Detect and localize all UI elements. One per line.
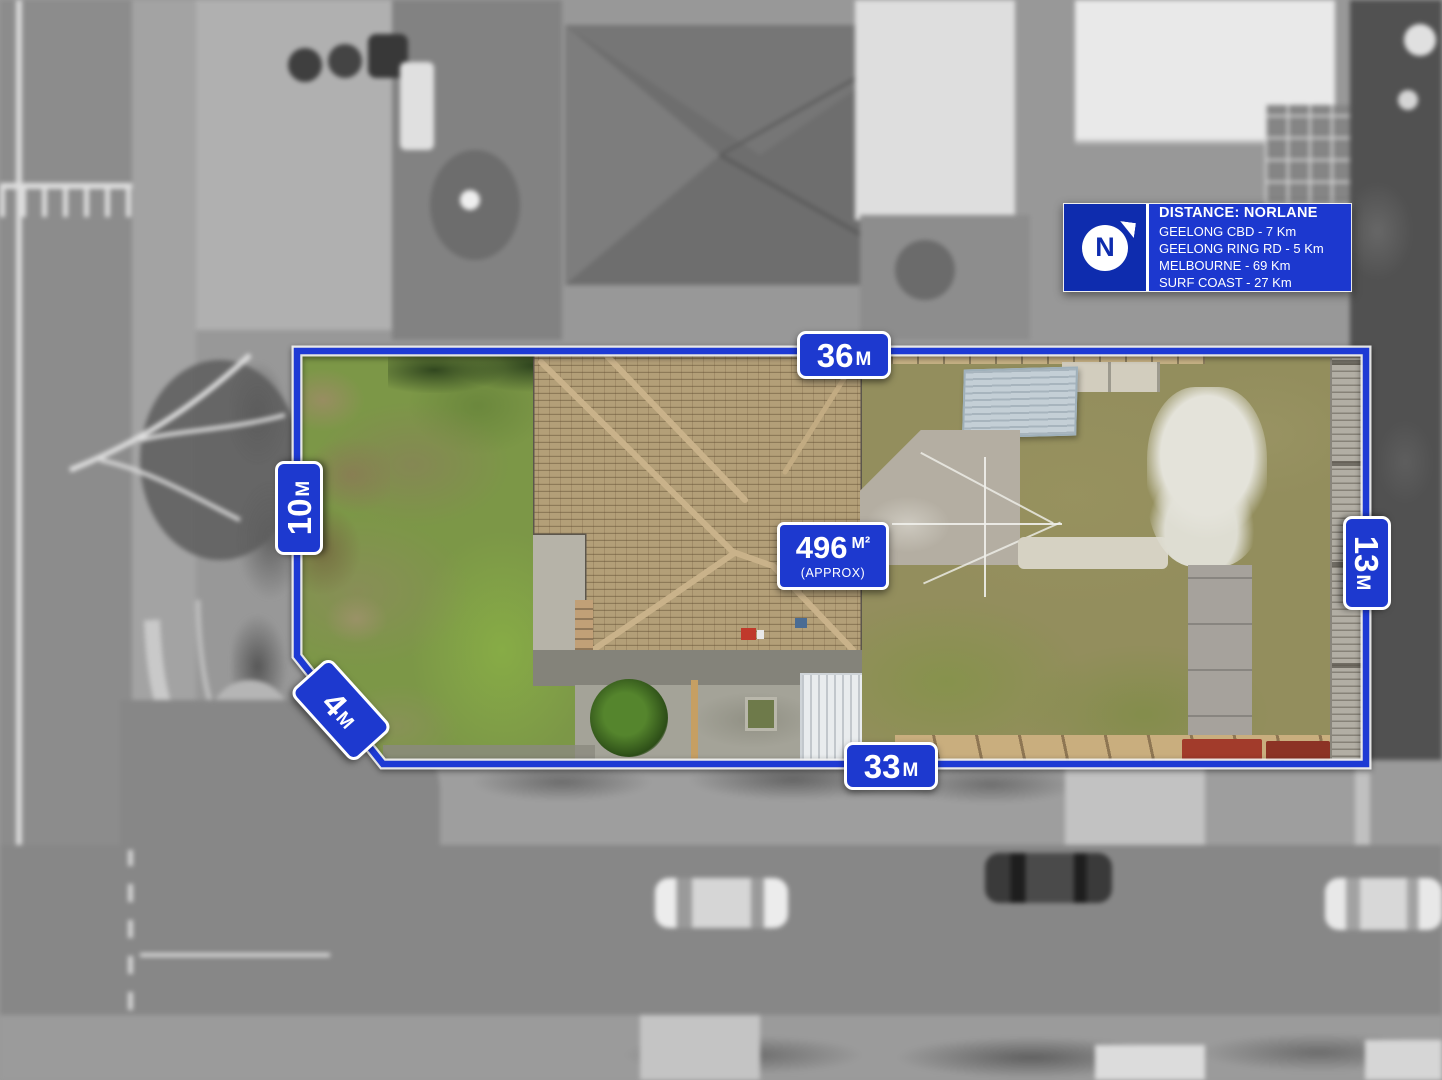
distance-title: DISTANCE: NORLANE xyxy=(1159,205,1341,221)
agency-logo-icon: N xyxy=(1082,225,1128,271)
dimension-unit: M xyxy=(855,350,871,369)
dimension-value: 36 xyxy=(817,339,854,372)
dimension-unit: M xyxy=(902,761,918,780)
dimension-label-bottom: 33M xyxy=(844,742,938,790)
area-value: 496 xyxy=(796,532,848,563)
dimension-value: 10 xyxy=(283,499,316,536)
dimension-value: 33 xyxy=(864,750,901,783)
distance-info-box: N DISTANCE: NORLANE GEELONG CBD - 7 Km G… xyxy=(1063,203,1352,292)
boundary-outline xyxy=(0,0,1442,1080)
agency-logo-letter: N xyxy=(1095,232,1115,263)
distance-line: GEELONG CBD - 7 Km xyxy=(1159,223,1341,240)
agency-logo-panel: N xyxy=(1064,204,1149,291)
distance-line: SURF COAST - 27 Km xyxy=(1159,274,1341,291)
area-unit: M² xyxy=(852,536,871,552)
dimension-value: 13 xyxy=(1351,536,1384,573)
dimension-label-left: 10M xyxy=(275,461,323,555)
distance-line: GEELONG RING RD - 5 Km xyxy=(1159,240,1341,257)
aerial-property-photo: 36M 10M 4M 33M 13M 496 M² (APPROX) N DIS… xyxy=(0,0,1442,1080)
area-qualifier: (APPROX) xyxy=(801,566,865,580)
dimension-label-right: 13M xyxy=(1343,516,1391,610)
area-label: 496 M² (APPROX) xyxy=(777,522,889,590)
dimension-unit: M xyxy=(1354,574,1373,590)
dimension-unit: M xyxy=(294,481,313,497)
dimension-label-top: 36M xyxy=(797,331,891,379)
distance-line: MELBOURNE - 69 Km xyxy=(1159,257,1341,274)
logo-wedge-icon xyxy=(1118,220,1136,237)
distance-info-text: DISTANCE: NORLANE GEELONG CBD - 7 Km GEE… xyxy=(1149,204,1351,291)
